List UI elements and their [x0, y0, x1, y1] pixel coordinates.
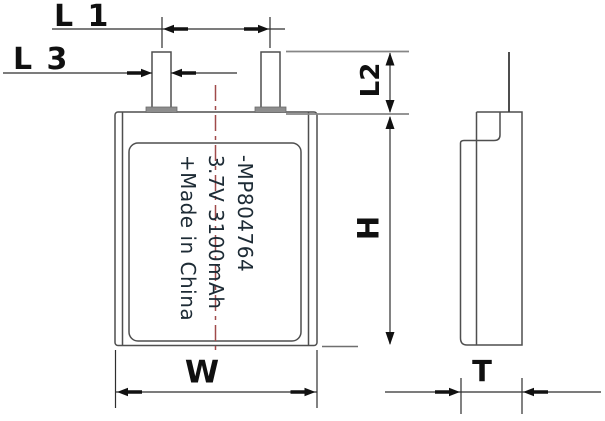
battery-model: -MP804764	[230, 155, 259, 321]
dim-label-l2: L2	[358, 63, 384, 98]
dim-l2	[286, 52, 409, 115]
dim-w-arrow-left-icon	[117, 388, 142, 396]
side-outer-outline	[461, 112, 523, 345]
right-tab-seal	[255, 107, 286, 113]
dim-h-arrow-up-icon	[386, 116, 395, 129]
left-terminal-tab	[152, 52, 171, 112]
battery-label-text: -MP804764 3.7V 3100mAh +Made in China	[173, 155, 259, 321]
battery-technical-drawing: L 1 L 3 L2 H W T -MP804764 3.7V 3100mAh …	[0, 0, 605, 421]
dim-label-l3: L 3	[13, 45, 69, 75]
dim-l1-extension-lines	[162, 17, 270, 48]
dim-l2-arrow-down-icon	[386, 100, 395, 113]
dim-l3-arrow-left-icon	[171, 69, 196, 77]
side-view	[461, 52, 523, 345]
dim-h-arrow-down-icon	[386, 332, 395, 345]
dim-l1-arrow-left-icon	[163, 25, 188, 33]
battery-origin: +Made in China	[173, 155, 202, 321]
dim-l1-arrow-right-icon	[244, 25, 269, 33]
right-terminal-tab	[261, 52, 280, 112]
left-tab-seal	[146, 107, 177, 113]
dim-w-arrow-right-icon	[291, 388, 316, 396]
dim-label-t: T	[472, 358, 492, 387]
dim-label-l1: L 1	[54, 2, 110, 32]
dim-l3-arrow-right-icon	[127, 69, 152, 77]
dim-label-w: W	[185, 358, 219, 389]
dim-t-arrow-left-icon	[523, 388, 548, 396]
dim-label-h: H	[355, 216, 384, 240]
dim-l2-arrow-up-icon	[386, 53, 395, 66]
battery-rating: 3.7V 3100mAh	[202, 155, 231, 321]
drawing-linework	[0, 0, 605, 421]
side-top-step-line	[464, 112, 500, 141]
dim-t-arrow-right-icon	[435, 388, 460, 396]
dim-t	[385, 378, 601, 414]
